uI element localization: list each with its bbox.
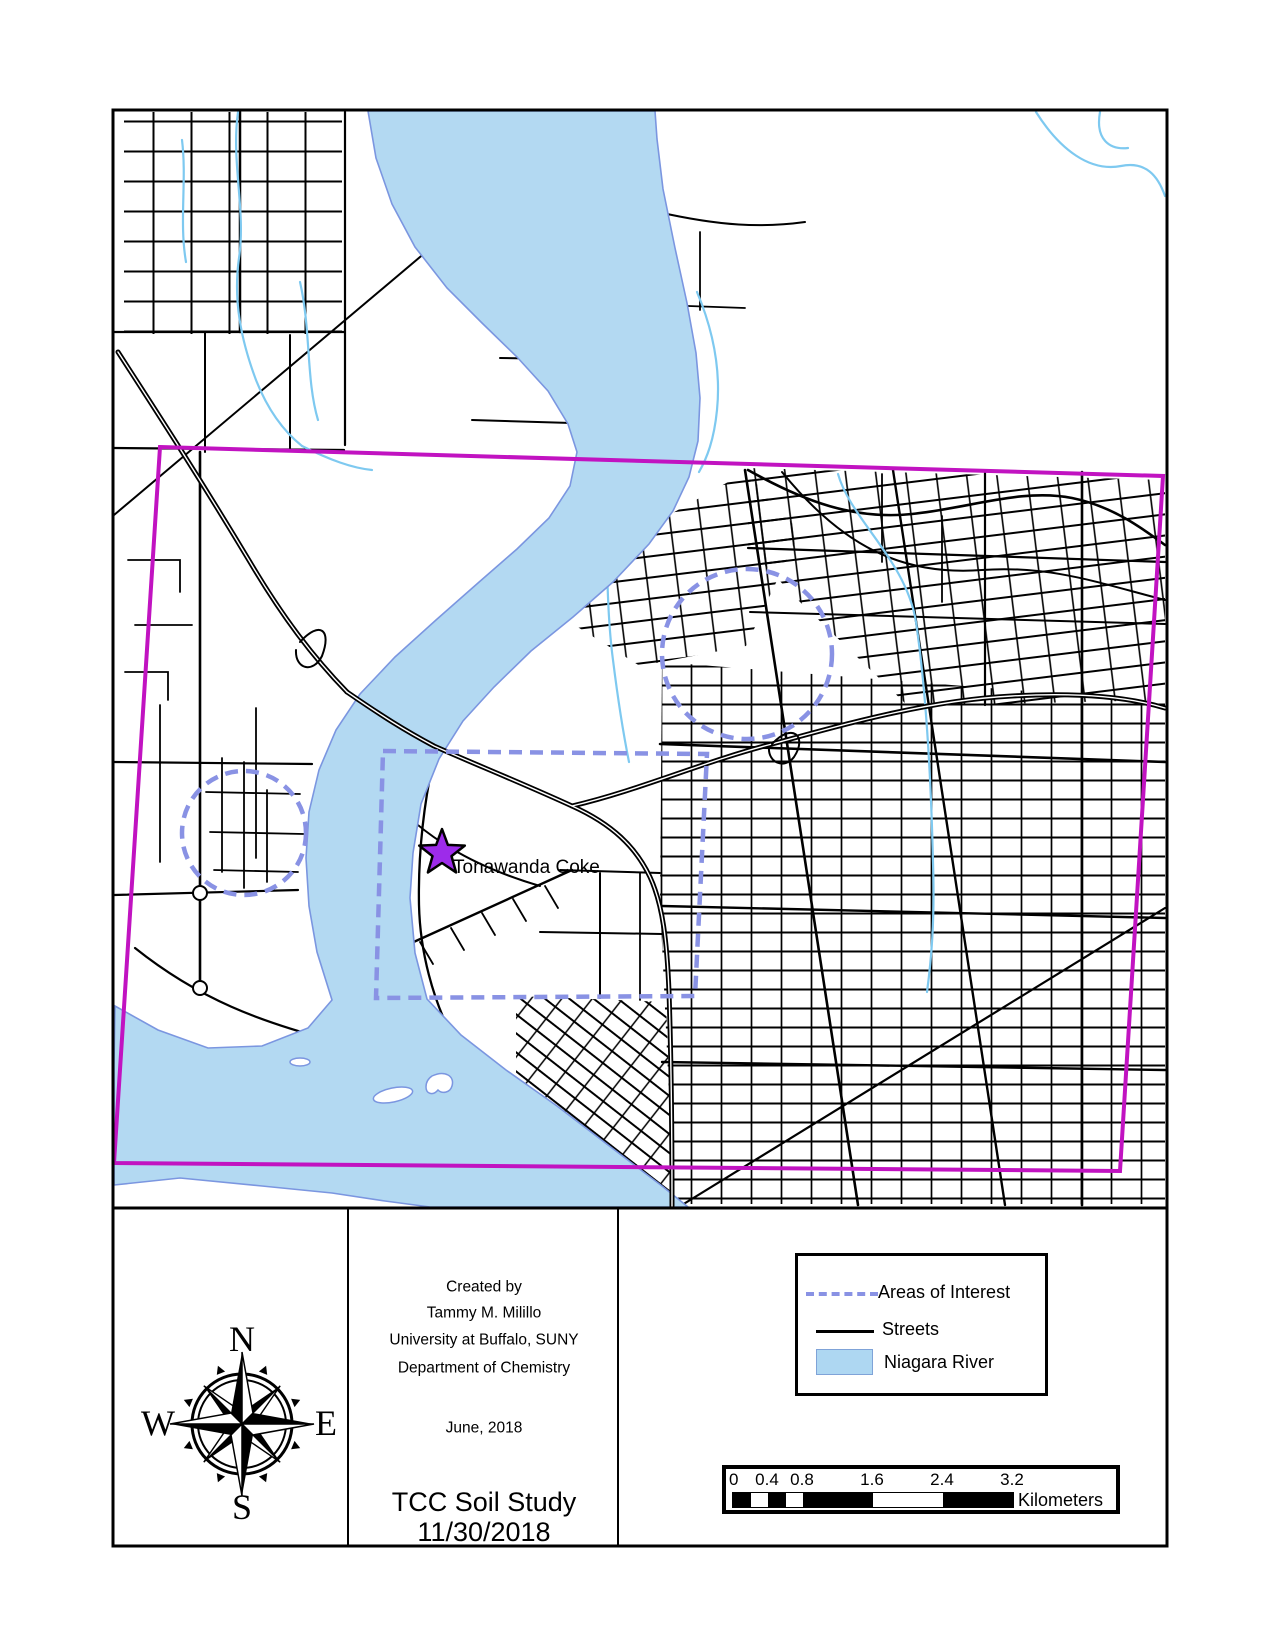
credit-line-3: University at Buffalo, SUNY [389, 1331, 578, 1348]
compass-rose-icon [170, 1352, 314, 1496]
scale-tick-04: 0.4 [755, 1470, 779, 1490]
map-layout-page: Tonawanda Coke N W E S Created by Tammy … [0, 0, 1275, 1650]
map-title-date: 11/30/2018 [417, 1518, 550, 1548]
map-canvas [0, 0, 1275, 1650]
scale-bar: 0 0.4 0.8 1.6 2.4 3.2 Kilometers [722, 1465, 1120, 1514]
legend: Areas of Interest Streets Niagara River [795, 1253, 1048, 1396]
compass-west-label: W [141, 1404, 175, 1444]
legend-label-streets: Streets [882, 1319, 939, 1340]
compass-north-label: N [229, 1320, 255, 1360]
scale-tick-16: 1.6 [860, 1470, 884, 1490]
credit-date: June, 2018 [446, 1419, 523, 1436]
credit-line-2: Tammy M. Milillo [427, 1304, 542, 1321]
compass-east-label: E [315, 1404, 337, 1444]
credit-line-4: Department of Chemistry [398, 1359, 570, 1376]
compass-south-label: S [232, 1488, 252, 1528]
map-title: TCC Soil Study [392, 1488, 577, 1518]
scale-tick-32: 3.2 [1000, 1470, 1024, 1490]
scale-tick-08: 0.8 [790, 1470, 814, 1490]
legend-solid-line-swatch [816, 1330, 874, 1333]
scale-bar-segments [732, 1492, 1014, 1508]
legend-label-niagara-river: Niagara River [884, 1352, 994, 1373]
legend-river-swatch [816, 1349, 873, 1375]
legend-label-areas-of-interest: Areas of Interest [878, 1282, 1010, 1303]
star-label: Tonawanda Coke [453, 858, 600, 879]
scale-tick-24: 2.4 [930, 1470, 954, 1490]
scale-unit-label: Kilometers [1018, 1490, 1103, 1511]
map-graphics [114, 111, 1165, 1207]
scale-tick-0: 0 [729, 1470, 738, 1490]
credit-line-1: Created by [446, 1278, 522, 1295]
legend-dashed-line-swatch [806, 1292, 878, 1296]
